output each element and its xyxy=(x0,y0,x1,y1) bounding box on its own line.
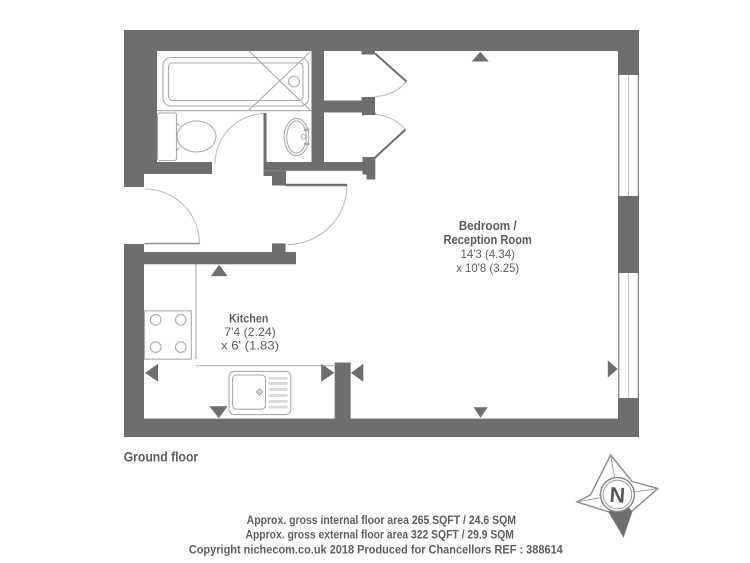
svg-text:Kitchen: Kitchen xyxy=(229,311,269,325)
svg-text:N: N xyxy=(609,483,626,508)
svg-text:Approx. gross internal floor a: Approx. gross internal floor area 265 SQ… xyxy=(247,515,516,527)
svg-text:Approx. gross external floor a: Approx. gross external floor area 322 SQ… xyxy=(246,530,514,542)
svg-text:x 6' (1.83): x 6' (1.83) xyxy=(221,338,279,352)
svg-text:14'3 (4.34): 14'3 (4.34) xyxy=(460,247,515,261)
svg-text:7'4 (2.24): 7'4 (2.24) xyxy=(224,325,276,339)
svg-text:Ground floor: Ground floor xyxy=(124,448,199,464)
svg-text:Reception Room: Reception Room xyxy=(443,233,532,247)
svg-text:x 10'8 (3.25): x 10'8 (3.25) xyxy=(456,261,519,275)
svg-text:Copyright nichecom.co.uk 2018: Copyright nichecom.co.uk 2018 Produced f… xyxy=(189,545,564,557)
svg-text:Bedroom /: Bedroom / xyxy=(459,219,517,233)
